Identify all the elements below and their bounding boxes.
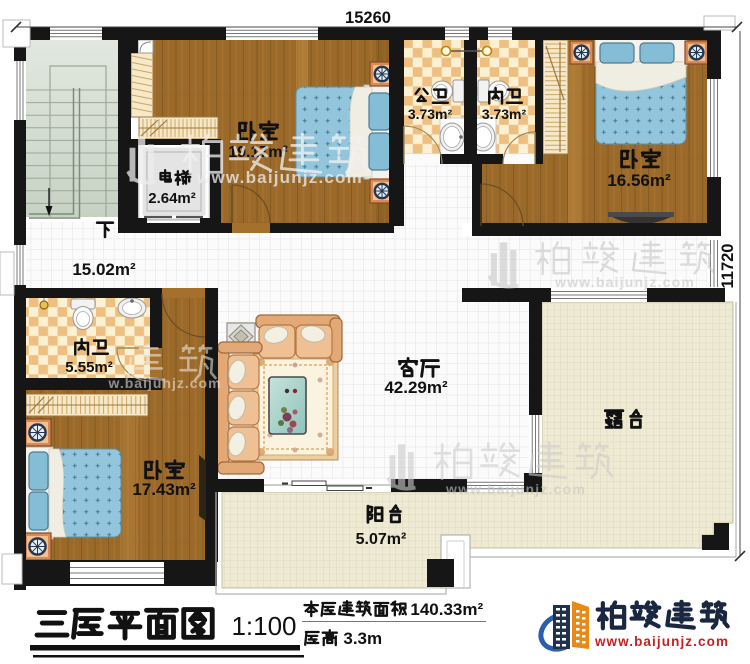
svg-text:15.02m²: 15.02m² [72, 260, 136, 279]
svg-text:www.baijunjz.com: www.baijunjz.com [445, 481, 586, 497]
svg-text:1:100: 1:100 [231, 611, 296, 641]
svg-text:: 140.33m²: : 140.33m² [400, 600, 483, 619]
svg-text:5.55m²: 5.55m² [65, 359, 113, 376]
svg-text:42.29m²: 42.29m² [384, 378, 448, 397]
svg-text:15260: 15260 [345, 9, 391, 27]
svg-text:www.baijunjz.com: www.baijunjz.com [594, 634, 729, 649]
svg-text:www.baijunjz.com: www.baijunjz.com [554, 274, 695, 290]
svg-text:2.64m²: 2.64m² [148, 190, 196, 207]
svg-text:: 3.3m: : 3.3m [333, 629, 382, 648]
svg-text:w.baijunjz.com: w.baijunjz.com [107, 375, 221, 391]
svg-text:5.07m²: 5.07m² [356, 531, 407, 548]
svg-text:16.56m²: 16.56m² [607, 171, 671, 190]
svg-text:17.43m²: 17.43m² [132, 480, 196, 499]
svg-text:11720: 11720 [719, 244, 737, 289]
svg-text:www.baijunjz.com: www.baijunjz.com [196, 168, 363, 187]
svg-text:3.73m²: 3.73m² [482, 106, 527, 122]
svg-text:3.73m²: 3.73m² [408, 106, 453, 122]
